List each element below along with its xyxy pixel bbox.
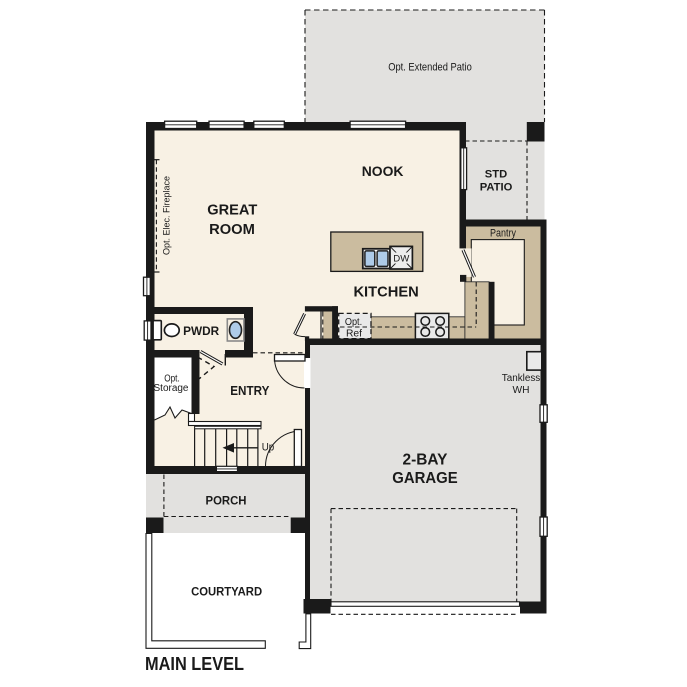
svg-text:NOOK: NOOK — [362, 163, 404, 179]
svg-text:Up: Up — [262, 442, 275, 454]
svg-text:Storage: Storage — [154, 383, 189, 394]
svg-text:Opt. Extended Patio: Opt. Extended Patio — [388, 62, 472, 74]
svg-text:STD: STD — [485, 168, 507, 180]
svg-text:PORCH: PORCH — [206, 494, 247, 508]
svg-text:WH: WH — [513, 385, 530, 396]
svg-text:GREAT: GREAT — [207, 202, 257, 218]
svg-text:PATIO: PATIO — [480, 182, 513, 194]
svg-text:MAIN LEVEL: MAIN LEVEL — [145, 654, 244, 674]
svg-text:GARAGE: GARAGE — [392, 470, 457, 487]
svg-text:COURTYARD: COURTYARD — [191, 584, 262, 598]
svg-text:ENTRY: ENTRY — [230, 384, 270, 398]
svg-text:Opt. Elec. Fireplace: Opt. Elec. Fireplace — [161, 176, 172, 255]
svg-text:Pantry: Pantry — [490, 227, 516, 239]
svg-text:KITCHEN: KITCHEN — [353, 284, 418, 300]
svg-text:Tankless: Tankless — [502, 373, 541, 384]
svg-text:PWDR: PWDR — [183, 324, 219, 338]
svg-text:2-BAY: 2-BAY — [403, 452, 448, 469]
svg-text:ROOM: ROOM — [209, 222, 255, 238]
svg-text:Opt.: Opt. — [345, 317, 362, 328]
svg-text:Ref: Ref — [346, 328, 362, 339]
svg-text:DW: DW — [393, 254, 410, 265]
